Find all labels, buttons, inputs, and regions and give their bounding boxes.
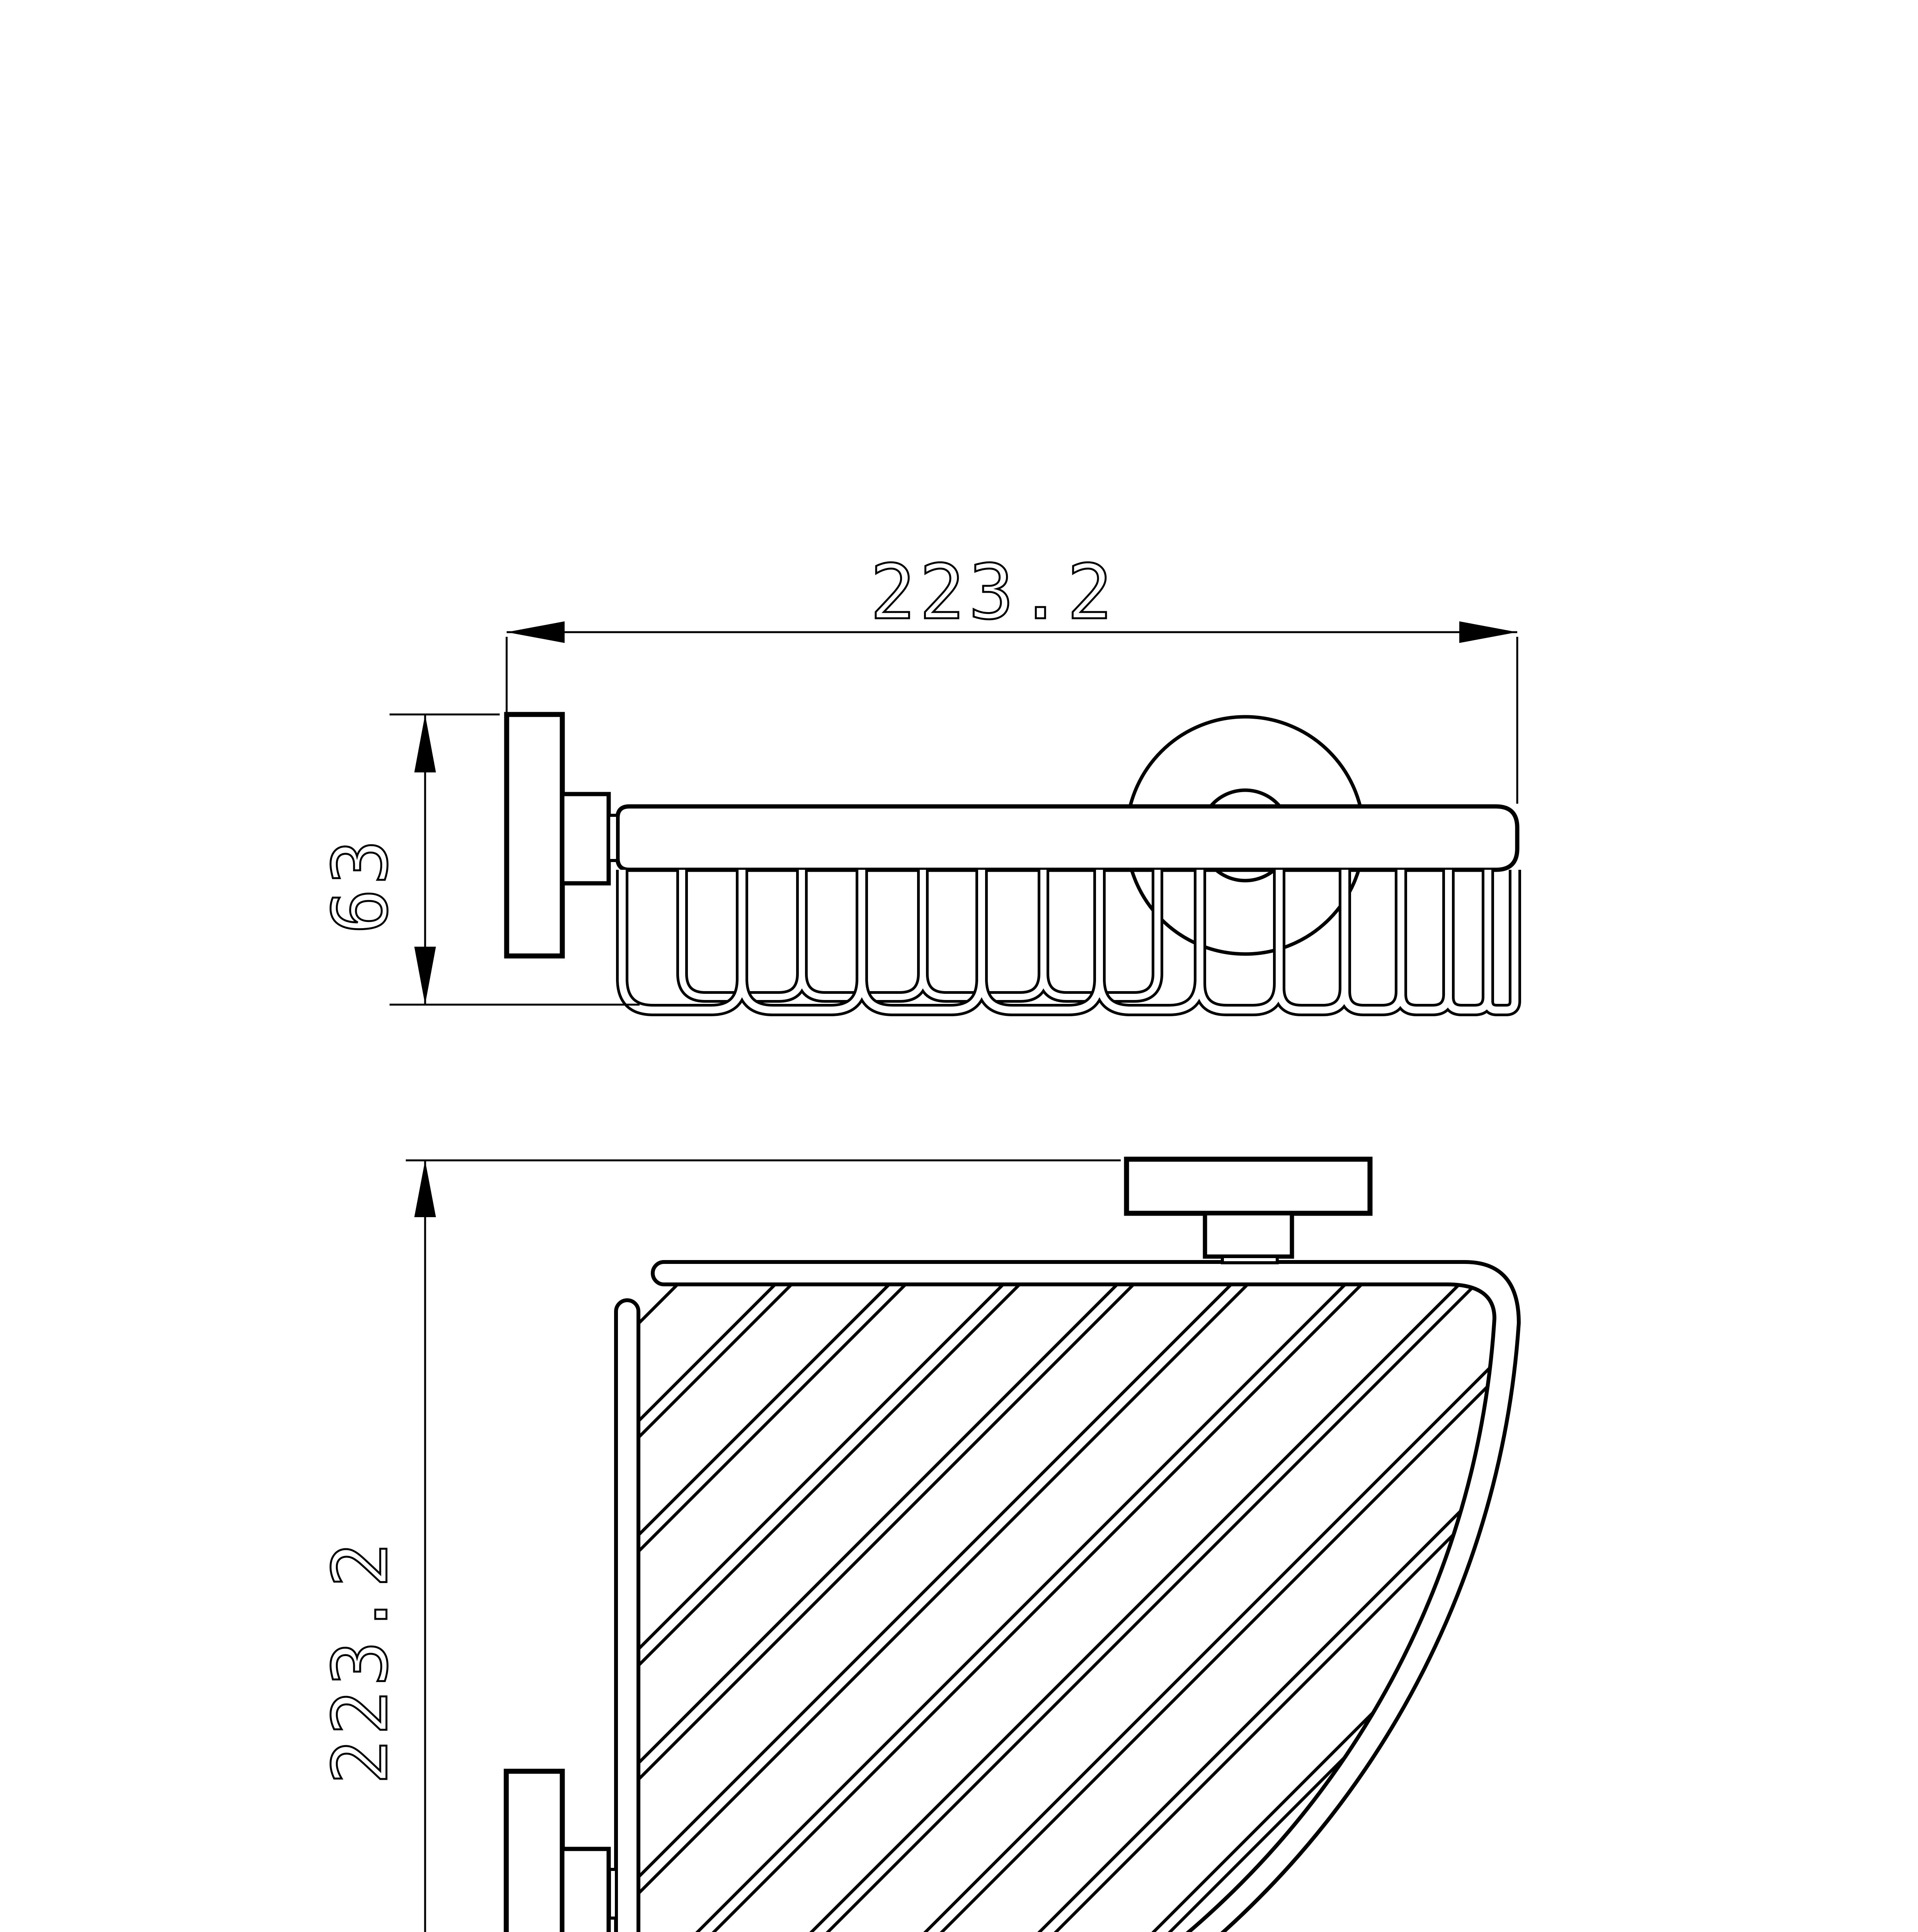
mount-connector-left-plan	[609, 1869, 616, 1918]
arrowhead-down	[414, 947, 436, 1005]
arrowhead-up	[414, 1160, 436, 1217]
mount-connector-side	[609, 815, 618, 861]
dimension-value: 63	[317, 836, 404, 934]
front-wire-loops	[622, 870, 1515, 1010]
dimension-value: 223.2	[870, 548, 1116, 636]
basket-wires-plan	[638, 1284, 1494, 1932]
drawing-sheet: 223.2 63 223	[0, 0, 1918, 1932]
mount-arm-top-plan	[1205, 1213, 1292, 1257]
wall-plate-top-plan	[1127, 1159, 1370, 1213]
mount-arm-left-plan	[562, 1849, 609, 1932]
arrowhead-up	[414, 714, 436, 772]
corner-basket-technical-drawing: 223.2 63 223	[0, 0, 1918, 1932]
mount-arm-side	[562, 794, 609, 883]
wall-plate-left-plan	[506, 1771, 562, 1932]
side-width-dimension: 223.2	[507, 548, 1517, 804]
rear-wire-loops	[682, 870, 1157, 997]
dimension-value: 223.2	[317, 1539, 404, 1785]
arrowhead-right	[1459, 621, 1517, 643]
arrowhead-left	[507, 621, 565, 643]
wall-plate-side	[507, 714, 562, 956]
basket-rim-side	[618, 806, 1517, 870]
side-elevation-view: 223.2 63	[317, 548, 1517, 1010]
plan-view: 223.2	[317, 1159, 1519, 1932]
mount-connector-top-plan	[1222, 1257, 1277, 1263]
